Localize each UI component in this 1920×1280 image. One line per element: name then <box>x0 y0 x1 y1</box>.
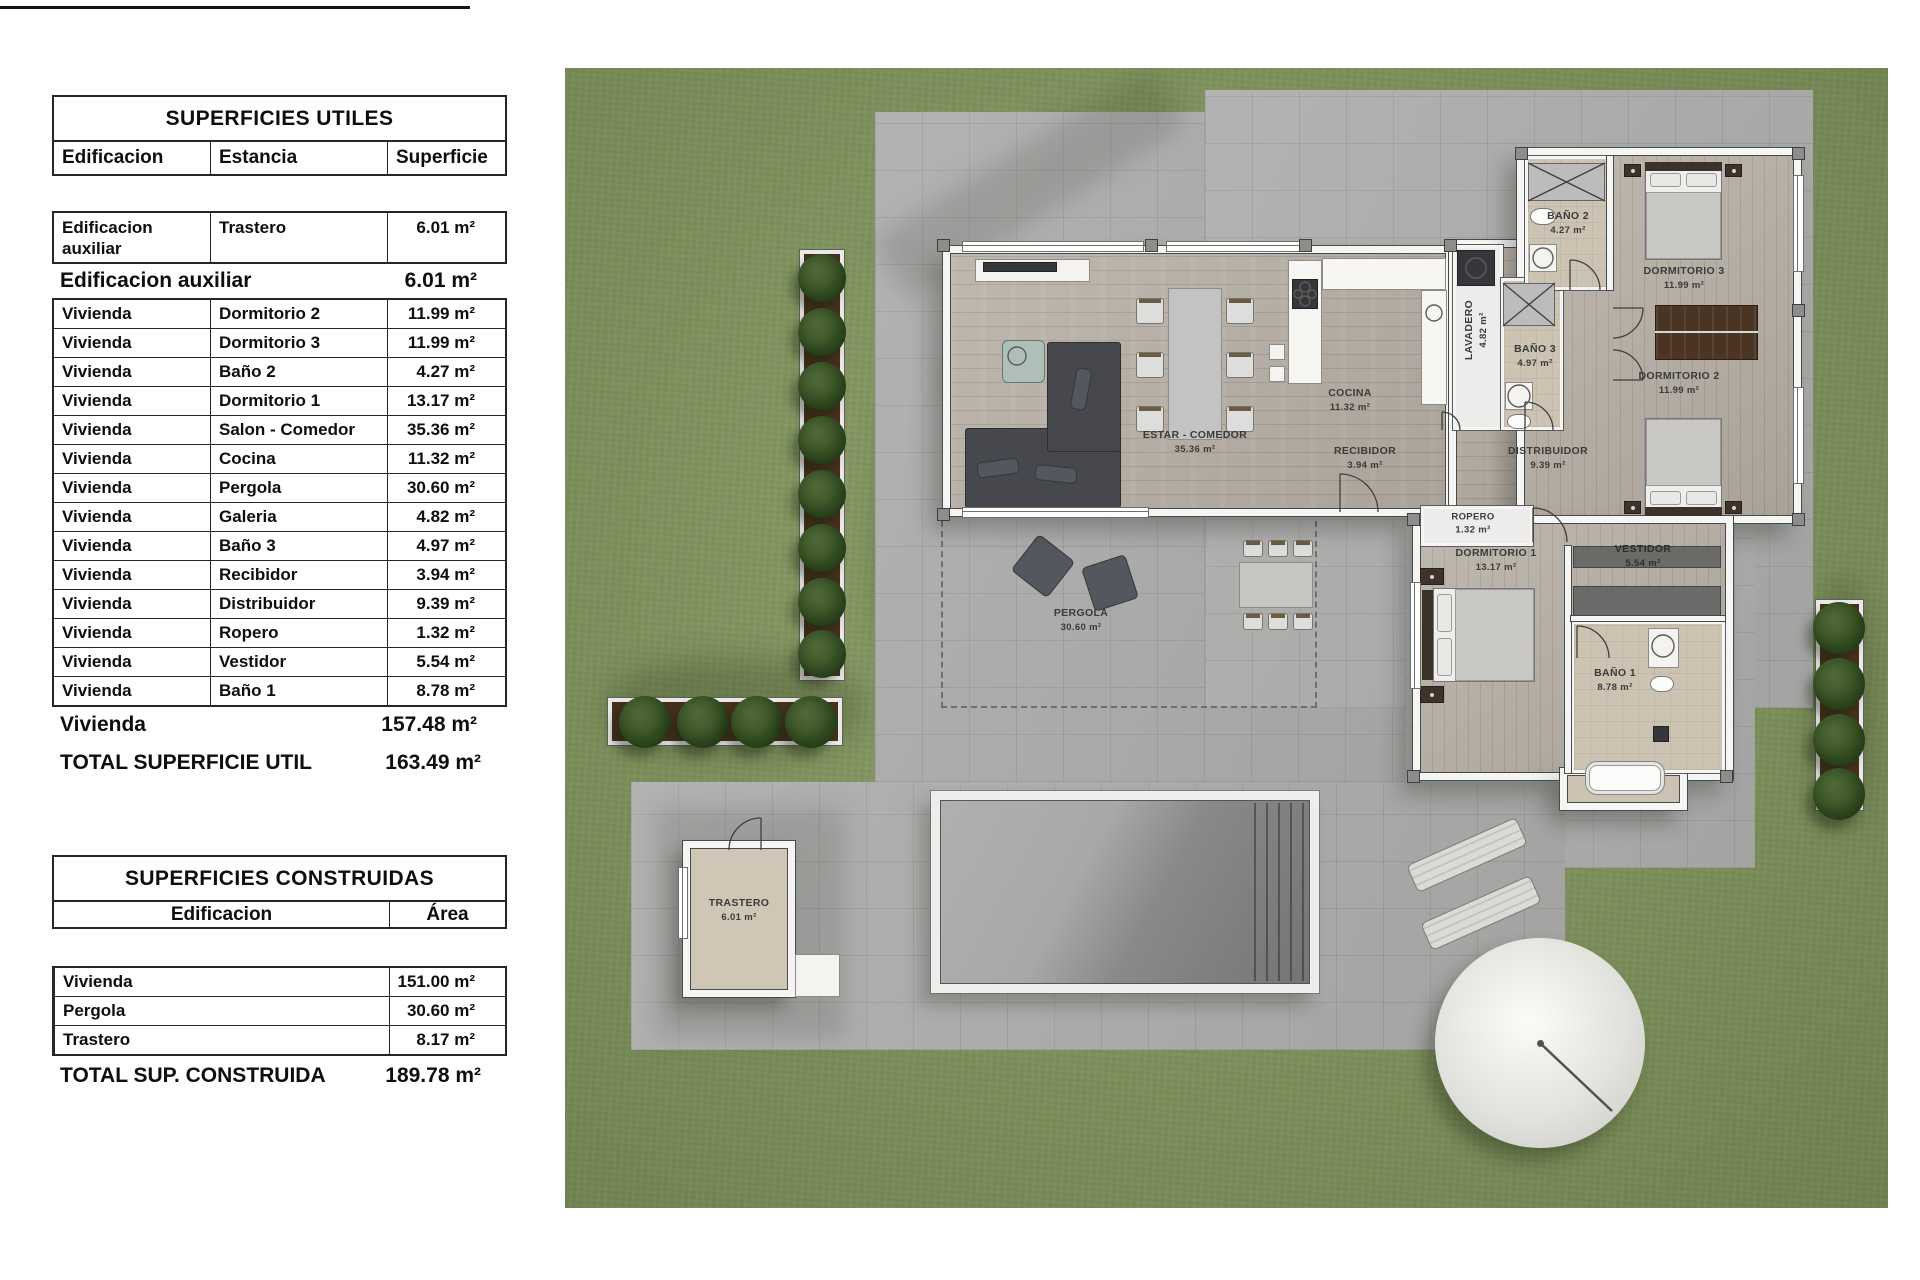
table-row: ViviendaBaño 24.27 m² <box>54 357 505 386</box>
col-header-superficie: Superficie <box>387 142 505 174</box>
table-row: ViviendaDistribuidor9.39 m² <box>54 589 505 618</box>
room-label-vestidor: VESTIDOR5.54 m² <box>1615 542 1671 570</box>
room-label-pergola: PERGOLA30.60 m² <box>1054 606 1108 634</box>
table-construidas-header: Edificacion Área <box>52 900 507 929</box>
table-row: ViviendaDormitorio 211.99 m² <box>54 300 505 328</box>
room-label-dormitorio2: DORMITORIO 211.99 m² <box>1638 369 1719 397</box>
floor-plan-sheet: SUPERFICIES UTILES Edificacion Estancia … <box>0 0 1920 1280</box>
room-label-dormitorio1: DORMITORIO 113.17 m² <box>1455 546 1536 574</box>
room-label-ropero: ROPERO1.32 m² <box>1451 511 1494 538</box>
table-row: ViviendaRecibidor3.94 m² <box>54 560 505 589</box>
table-row: ViviendaRopero1.32 m² <box>54 618 505 647</box>
aux-building-row: Edificacionauxiliar Trastero 6.01 m² <box>52 211 507 264</box>
aux-total-line: Edificacion auxiliar 6.01 m² <box>52 264 507 298</box>
vivienda-total-line: Vivienda 157.48 m² <box>52 707 507 743</box>
table-row: Vivienda151.00 m² <box>54 968 505 996</box>
table-row: ViviendaDormitorio 311.99 m² <box>54 328 505 357</box>
table-row: ViviendaCocina11.32 m² <box>54 444 505 473</box>
plan-linework <box>565 68 1888 1208</box>
room-label-dormitorio3: DORMITORIO 311.99 m² <box>1643 264 1724 292</box>
room-label-recibidor: RECIBIDOR3.94 m² <box>1334 444 1396 472</box>
table-row: ViviendaDormitorio 113.17 m² <box>54 386 505 415</box>
room-label-lavadero: LAVADERO4.82 m² <box>1462 300 1490 360</box>
total-construida-line: TOTAL SUP. CONSTRUIDA 189.78 m² <box>52 1056 507 1096</box>
room-label-trastero: TRASTERO6.01 m² <box>709 896 770 924</box>
room-label-cocina: COCINA11.32 m² <box>1328 386 1372 414</box>
table-row: ViviendaBaño 34.97 m² <box>54 531 505 560</box>
table-row: ViviendaBaño 18.78 m² <box>54 676 505 705</box>
construidas-rows-table: Vivienda151.00 m² Pergola30.60 m² Traste… <box>52 966 507 1056</box>
table-row: ViviendaSalon - Comedor35.36 m² <box>54 415 505 444</box>
col-header-estancia: Estancia <box>210 142 387 174</box>
room-label-estar-comedor: ESTAR - COMEDOR35.36 m² <box>1143 428 1247 456</box>
room-label-bano2: BAÑO 24.27 m² <box>1547 209 1589 237</box>
area-tables-panel: SUPERFICIES UTILES Edificacion Estancia … <box>52 95 507 1096</box>
table-construidas-title: SUPERFICIES CONSTRUIDAS <box>52 855 507 902</box>
table-utiles-header: Edificacion Estancia Superficie <box>52 140 507 176</box>
room-label-bano1: BAÑO 18.78 m² <box>1594 666 1636 694</box>
site-plan: ESTAR - COMEDOR35.36 m² COCINA11.32 m² L… <box>565 68 1888 1208</box>
utiles-rows-table: ViviendaDormitorio 211.99 m² ViviendaDor… <box>52 298 507 707</box>
room-label-bano3: BAÑO 34.97 m² <box>1514 342 1556 370</box>
col-header-edificacion2: Edificacion <box>54 902 389 927</box>
table-utiles-title: SUPERFICIES UTILES <box>52 95 507 142</box>
table-row: ViviendaPergola30.60 m² <box>54 473 505 502</box>
table-row: ViviendaVestidor5.54 m² <box>54 647 505 676</box>
table-row: Trastero8.17 m² <box>54 1025 505 1054</box>
table-row: Pergola30.60 m² <box>54 996 505 1025</box>
col-header-edificacion: Edificacion <box>54 142 210 174</box>
page-border-line <box>0 6 470 9</box>
total-util-line: TOTAL SUPERFICIE UTIL 163.49 m² <box>52 743 507 783</box>
room-label-distribuidor: DISTRIBUIDOR9.39 m² <box>1508 444 1588 472</box>
col-header-area: Área <box>389 902 505 927</box>
table-row: ViviendaGaleria4.82 m² <box>54 502 505 531</box>
